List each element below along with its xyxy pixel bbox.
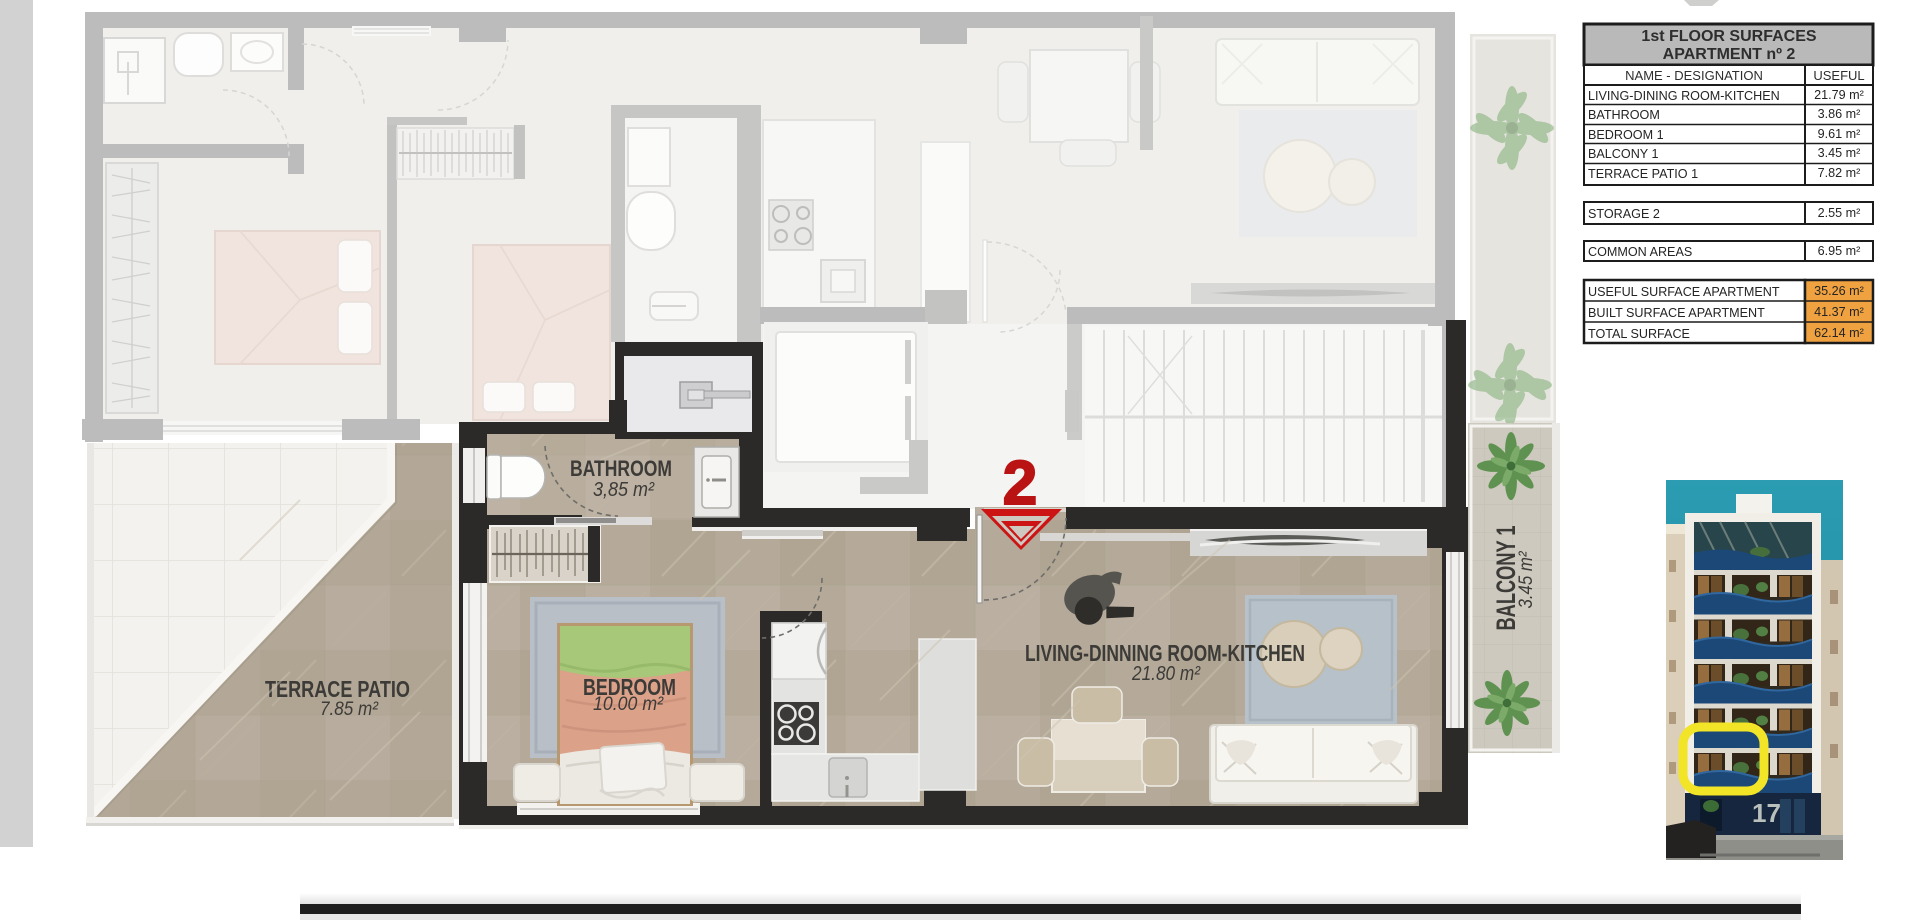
svg-text:21.79 m²: 21.79 m² xyxy=(1814,88,1864,102)
svg-text:BATHROOM: BATHROOM xyxy=(570,456,672,481)
svg-text:3,85 m²: 3,85 m² xyxy=(593,479,655,501)
svg-text:BATHROOM: BATHROOM xyxy=(1588,108,1660,122)
svg-text:7.85 m²: 7.85 m² xyxy=(320,699,379,720)
svg-text:STORAGE 2: STORAGE 2 xyxy=(1588,207,1660,221)
svg-text:9.61 m²: 9.61 m² xyxy=(1818,127,1861,141)
svg-text:LIVING-DINING ROOM-KITCHEN: LIVING-DINING ROOM-KITCHEN xyxy=(1588,89,1780,103)
svg-text:2.55 m²: 2.55 m² xyxy=(1818,206,1861,220)
svg-text:BALCONY 1: BALCONY 1 xyxy=(1588,147,1658,161)
svg-text:7.82 m²: 7.82 m² xyxy=(1818,166,1861,180)
svg-text:USEFUL SURFACE APARTMENT: USEFUL SURFACE APARTMENT xyxy=(1588,285,1780,299)
svg-text:41.37 m²: 41.37 m² xyxy=(1814,305,1864,319)
svg-text:3.45 m²: 3.45 m² xyxy=(1516,551,1537,609)
svg-text:COMMON AREAS: COMMON AREAS xyxy=(1588,245,1692,259)
svg-text:3.45 m²: 3.45 m² xyxy=(1818,146,1861,160)
svg-text:TOTAL SURFACE: TOTAL SURFACE xyxy=(1588,327,1690,341)
svg-text:10.00 m²: 10.00 m² xyxy=(593,694,664,715)
svg-text:17: 17 xyxy=(1752,798,1781,828)
svg-text:21.80 m²: 21.80 m² xyxy=(1131,663,1201,685)
svg-text:TERRACE PATIO 1: TERRACE PATIO 1 xyxy=(1588,167,1698,181)
svg-text:NAME - DESIGNATION: NAME - DESIGNATION xyxy=(1625,68,1763,83)
svg-text:1st FLOOR SURFACES: 1st FLOOR SURFACES xyxy=(1641,28,1816,45)
svg-text:35.26 m²: 35.26 m² xyxy=(1814,284,1864,298)
svg-text:62.14 m²: 62.14 m² xyxy=(1814,326,1864,340)
svg-text:6.95 m²: 6.95 m² xyxy=(1818,244,1861,258)
svg-text:BEDROOM 1: BEDROOM 1 xyxy=(1588,128,1664,142)
svg-text:BUILT SURFACE APARTMENT: BUILT SURFACE APARTMENT xyxy=(1588,306,1765,320)
svg-text:3.86 m²: 3.86 m² xyxy=(1818,107,1861,121)
svg-text:USEFUL: USEFUL xyxy=(1813,68,1864,83)
svg-text:APARTMENT nº 2: APARTMENT nº 2 xyxy=(1663,46,1796,63)
svg-text:2: 2 xyxy=(1003,449,1037,518)
